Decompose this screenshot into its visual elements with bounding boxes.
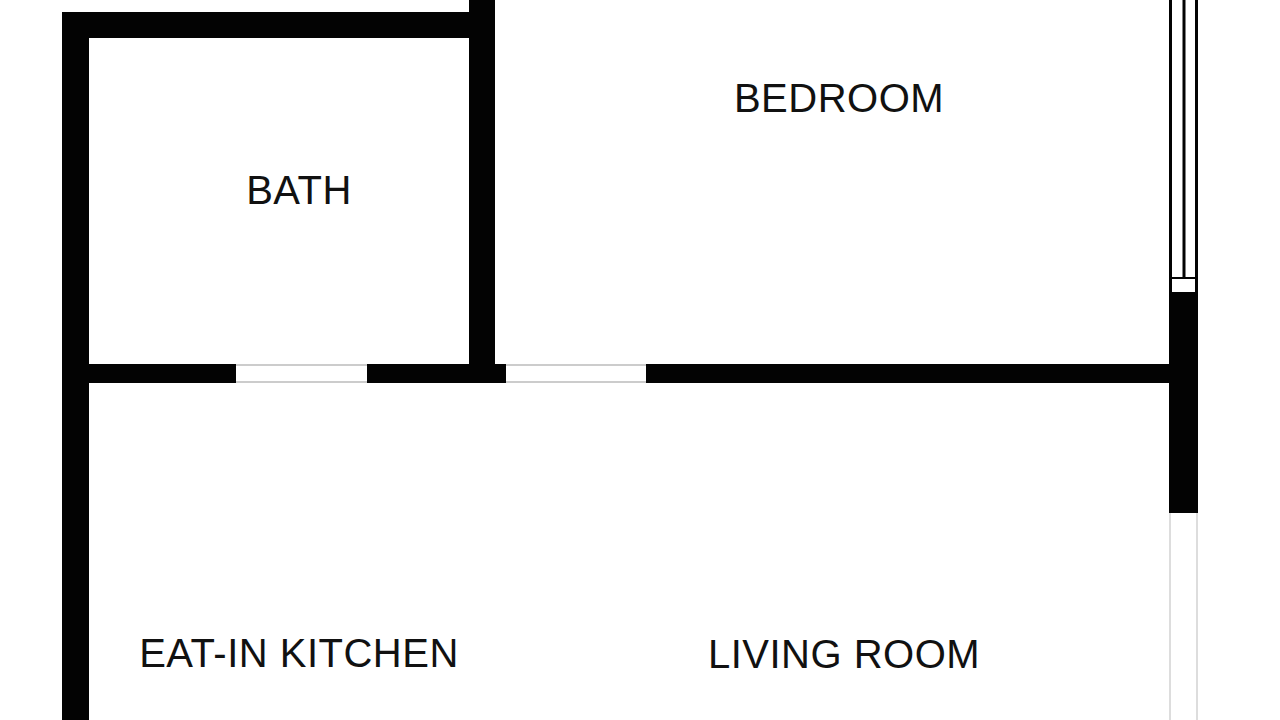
wall-middle-segment-right [646,364,1198,383]
room-label-bedroom: BEDROOM [734,76,944,121]
room-label-bath: BATH [246,168,352,213]
room-label-kitchen: EAT-IN KITCHEN [139,631,459,676]
wall-right-exterior [1169,292,1198,513]
bath-door-opening [236,364,367,383]
room-label-living-room: LIVING ROOM [708,632,980,677]
window-icon [1169,0,1198,292]
bedroom-door-opening [506,364,646,383]
window-mullion-line [1182,0,1185,277]
faint-wall-line-right [1196,513,1198,720]
wall-top-bath [62,12,495,38]
floorplan-canvas: BATH BEDROOM EAT-IN KITCHEN LIVING ROOM [0,0,1280,720]
wall-middle-segment-center [367,364,506,383]
wall-bath-bedroom-divider [469,0,495,383]
faint-wall-line-left [1169,513,1171,720]
wall-middle-segment-left [62,364,236,383]
window-sill-line [1172,277,1195,279]
